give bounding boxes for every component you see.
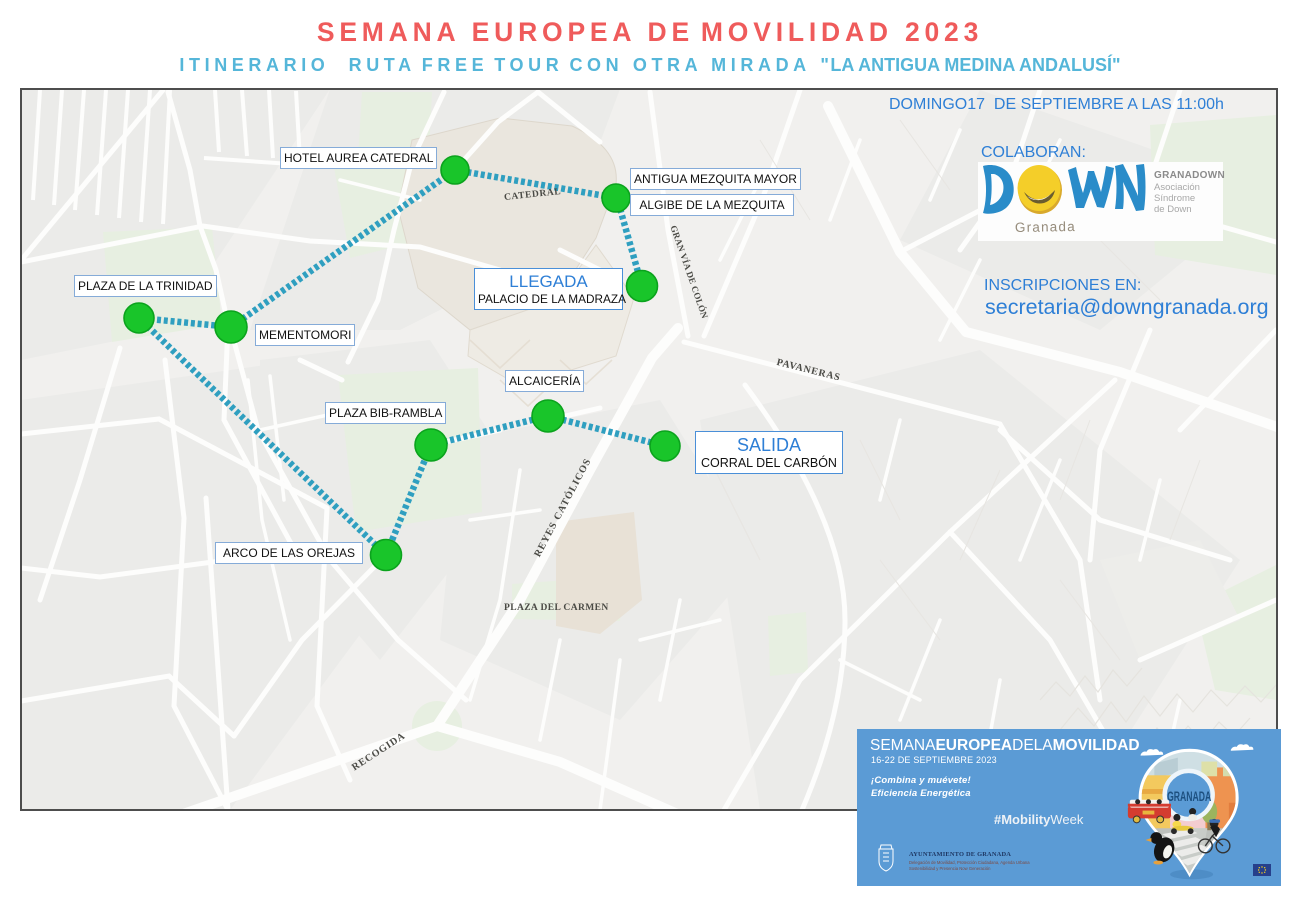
svg-text:GRANADOWN: GRANADOWN	[1154, 170, 1225, 181]
svg-text:Síndrome: Síndrome	[1154, 193, 1195, 204]
svg-text:Granada: Granada	[1015, 219, 1076, 235]
svg-text:de Down: de Down	[1154, 204, 1192, 215]
svg-text:Asociación: Asociación	[1154, 182, 1200, 193]
svg-text:GRANADA: GRANADA	[1167, 789, 1211, 804]
